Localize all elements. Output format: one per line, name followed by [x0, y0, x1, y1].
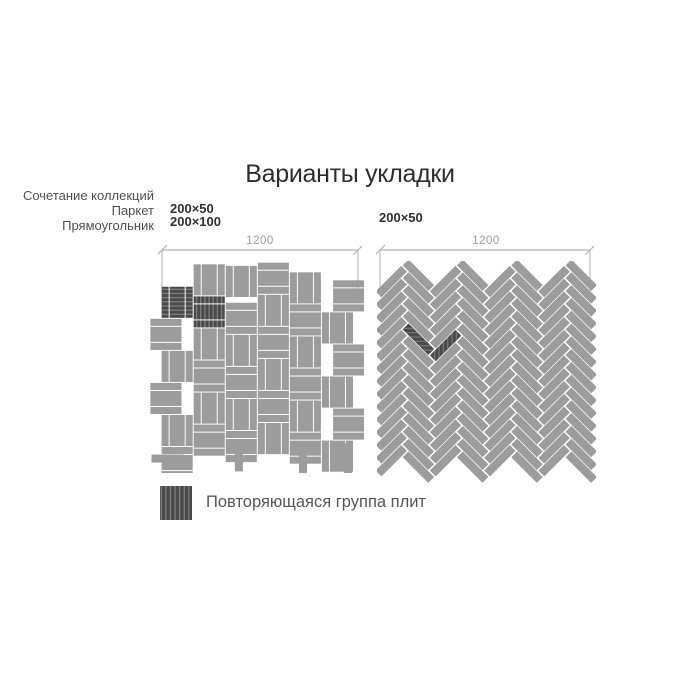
left-pattern-size-labels: 200×50 200×100: [170, 202, 221, 228]
parquet-unit: [226, 399, 257, 430]
parquet-pattern-diagram: [149, 255, 364, 473]
collection-note-line2: Паркет: [23, 203, 154, 218]
parquet-unit: [162, 351, 193, 382]
parquet-unit: [226, 266, 257, 297]
page-title: Варианты укладки: [0, 160, 700, 189]
parquet-unit: [322, 312, 353, 343]
parquet-unit: [258, 263, 289, 294]
parquet-unit: [290, 401, 321, 432]
collection-note: Сочетание коллекций Паркет Прямоугольник: [23, 188, 154, 233]
parquet-unit: [333, 344, 364, 375]
parquet-unit: [258, 423, 289, 454]
page: Варианты укладки Сочетание коллекций Пар…: [0, 0, 700, 700]
parquet-unit: [226, 367, 257, 398]
parquet-unit: [194, 296, 225, 327]
collection-note-line1: Сочетание коллекций: [23, 188, 154, 203]
parquet-unit: [226, 303, 257, 334]
parquet-unit: [150, 383, 181, 414]
parquet-edge-tile: [235, 439, 243, 471]
parquet-unit: [150, 319, 181, 350]
parquet-unit: [258, 359, 289, 390]
right-pattern-size-label: 200×50: [379, 211, 423, 224]
parquet-unit: [162, 415, 193, 446]
parquet-unit: [322, 377, 353, 408]
parquet-edge-tile: [344, 443, 352, 473]
parquet-edge-tile: [299, 442, 307, 473]
parquet-unit: [258, 391, 289, 422]
parquet-unit: [162, 287, 193, 318]
parquet-unit: [194, 328, 225, 359]
herringbone-pattern-diagram: [377, 261, 596, 489]
parquet-unit: [194, 393, 225, 424]
left-pattern-size-2: 200×100: [170, 215, 221, 228]
parquet-unit: [258, 295, 289, 326]
parquet-edge-tile: [152, 455, 184, 463]
parquet-unit: [290, 272, 321, 303]
legend-label: Повторяющаяся группа плит: [206, 493, 426, 512]
collection-note-line3: Прямоугольник: [23, 218, 154, 233]
parquet-unit: [194, 425, 225, 456]
parquet-unit: [258, 327, 289, 358]
parquet-unit: [290, 336, 321, 367]
parquet-unit: [333, 409, 364, 440]
parquet-unit: [290, 304, 321, 335]
parquet-unit: [290, 368, 321, 399]
parquet-unit: [194, 360, 225, 391]
legend-dark-tile-swatch: [160, 486, 192, 520]
parquet-unit: [333, 280, 364, 311]
parquet-unit: [194, 264, 225, 295]
legend-swatch: [159, 485, 193, 521]
parquet-unit: [226, 335, 257, 366]
